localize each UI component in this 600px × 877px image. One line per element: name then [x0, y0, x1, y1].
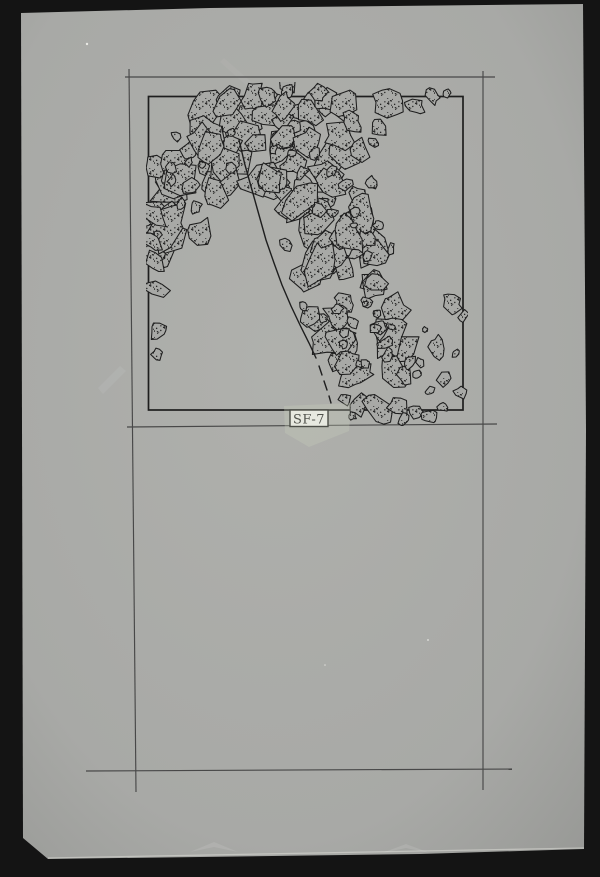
recording-sheet-svg: SF-7: [0, 0, 600, 877]
dust-speck: [324, 664, 326, 666]
stone: [413, 370, 422, 378]
dust-speck: [427, 639, 429, 641]
stone: [320, 314, 328, 323]
scan-photo: SF-7: [0, 0, 600, 877]
stone: [300, 302, 307, 311]
stone: [373, 310, 381, 318]
stone: [373, 89, 404, 118]
stone: [370, 324, 381, 333]
stone: [288, 150, 297, 156]
dust-speck: [86, 43, 88, 45]
stone: [361, 360, 369, 369]
